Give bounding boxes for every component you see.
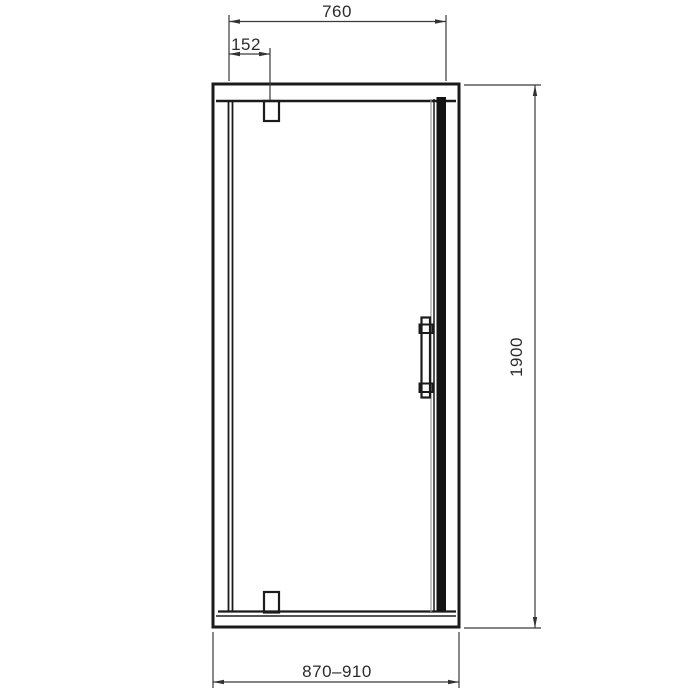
door-assembly	[213, 84, 459, 627]
dim-height-label: 1900	[507, 337, 526, 377]
dim-door-width-label: 760	[322, 2, 352, 21]
drawing-canvas: 760 152 1900 870–910	[0, 0, 700, 700]
door-stile-bar	[437, 97, 447, 611]
dim-pivot-offset-label: 152	[231, 35, 261, 54]
dim-overall-width-label: 870–910	[302, 662, 372, 681]
glass-panel	[233, 102, 430, 611]
shower-door-technical-drawing: 760 152 1900 870–910	[0, 0, 700, 700]
